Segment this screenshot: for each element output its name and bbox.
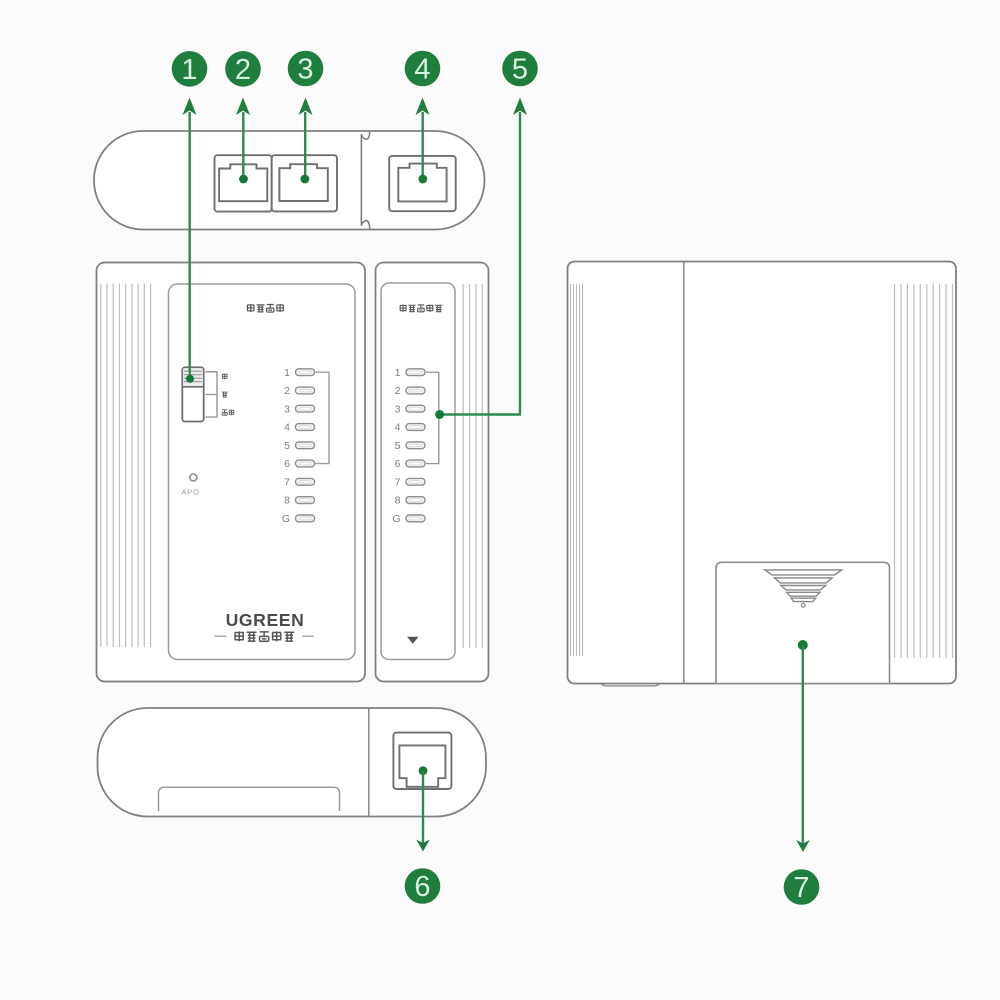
svg-text:6: 6: [395, 458, 401, 470]
svg-text:7: 7: [395, 476, 401, 488]
svg-text:3: 3: [284, 403, 290, 415]
svg-text:G: G: [392, 513, 400, 525]
svg-text:5: 5: [512, 54, 528, 86]
svg-text:2: 2: [395, 385, 401, 397]
svg-text:2: 2: [284, 385, 290, 397]
svg-text:1: 1: [395, 367, 401, 379]
svg-text:8: 8: [395, 495, 401, 507]
svg-text:3: 3: [297, 54, 313, 86]
svg-text:1: 1: [181, 54, 197, 86]
svg-text:7: 7: [284, 476, 290, 488]
svg-text:5: 5: [284, 440, 290, 452]
svg-text:8: 8: [284, 495, 290, 507]
svg-text:2: 2: [235, 54, 251, 86]
svg-text:3: 3: [395, 403, 401, 415]
svg-text:G: G: [282, 513, 290, 525]
svg-text:4: 4: [395, 422, 401, 434]
svg-text:6: 6: [414, 871, 430, 903]
svg-text:UGREEN: UGREEN: [226, 610, 305, 630]
svg-text:7: 7: [793, 872, 809, 904]
svg-text:6: 6: [284, 458, 290, 470]
svg-text:4: 4: [414, 54, 430, 86]
svg-text:1: 1: [284, 367, 290, 379]
svg-text:APO: APO: [181, 488, 199, 497]
svg-text:5: 5: [395, 440, 401, 452]
svg-text:4: 4: [284, 422, 290, 434]
